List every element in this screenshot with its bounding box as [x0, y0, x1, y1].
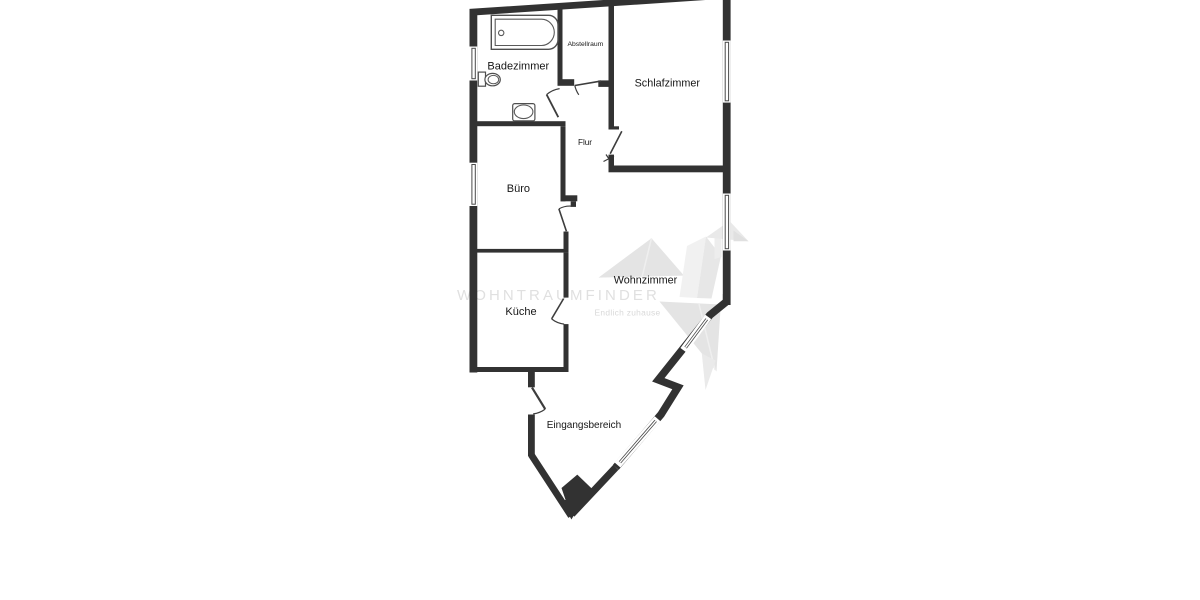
svg-text:Endlich zuhause: Endlich zuhause: [595, 307, 661, 317]
svg-text:WOHNTRAUMFINDER: WOHNTRAUMFINDER: [457, 287, 660, 304]
svg-text:Flur: Flur: [578, 138, 592, 147]
svg-text:Badezimmer: Badezimmer: [487, 61, 549, 73]
svg-text:Schlafzimmer: Schlafzimmer: [635, 78, 701, 90]
svg-text:Küche: Küche: [505, 306, 536, 318]
svg-text:Wohnzimmer: Wohnzimmer: [614, 274, 678, 286]
svg-text:Büro: Büro: [507, 183, 530, 195]
svg-text:Abstellraum: Abstellraum: [567, 41, 603, 48]
svg-text:Eingangsbereich: Eingangsbereich: [547, 420, 622, 431]
